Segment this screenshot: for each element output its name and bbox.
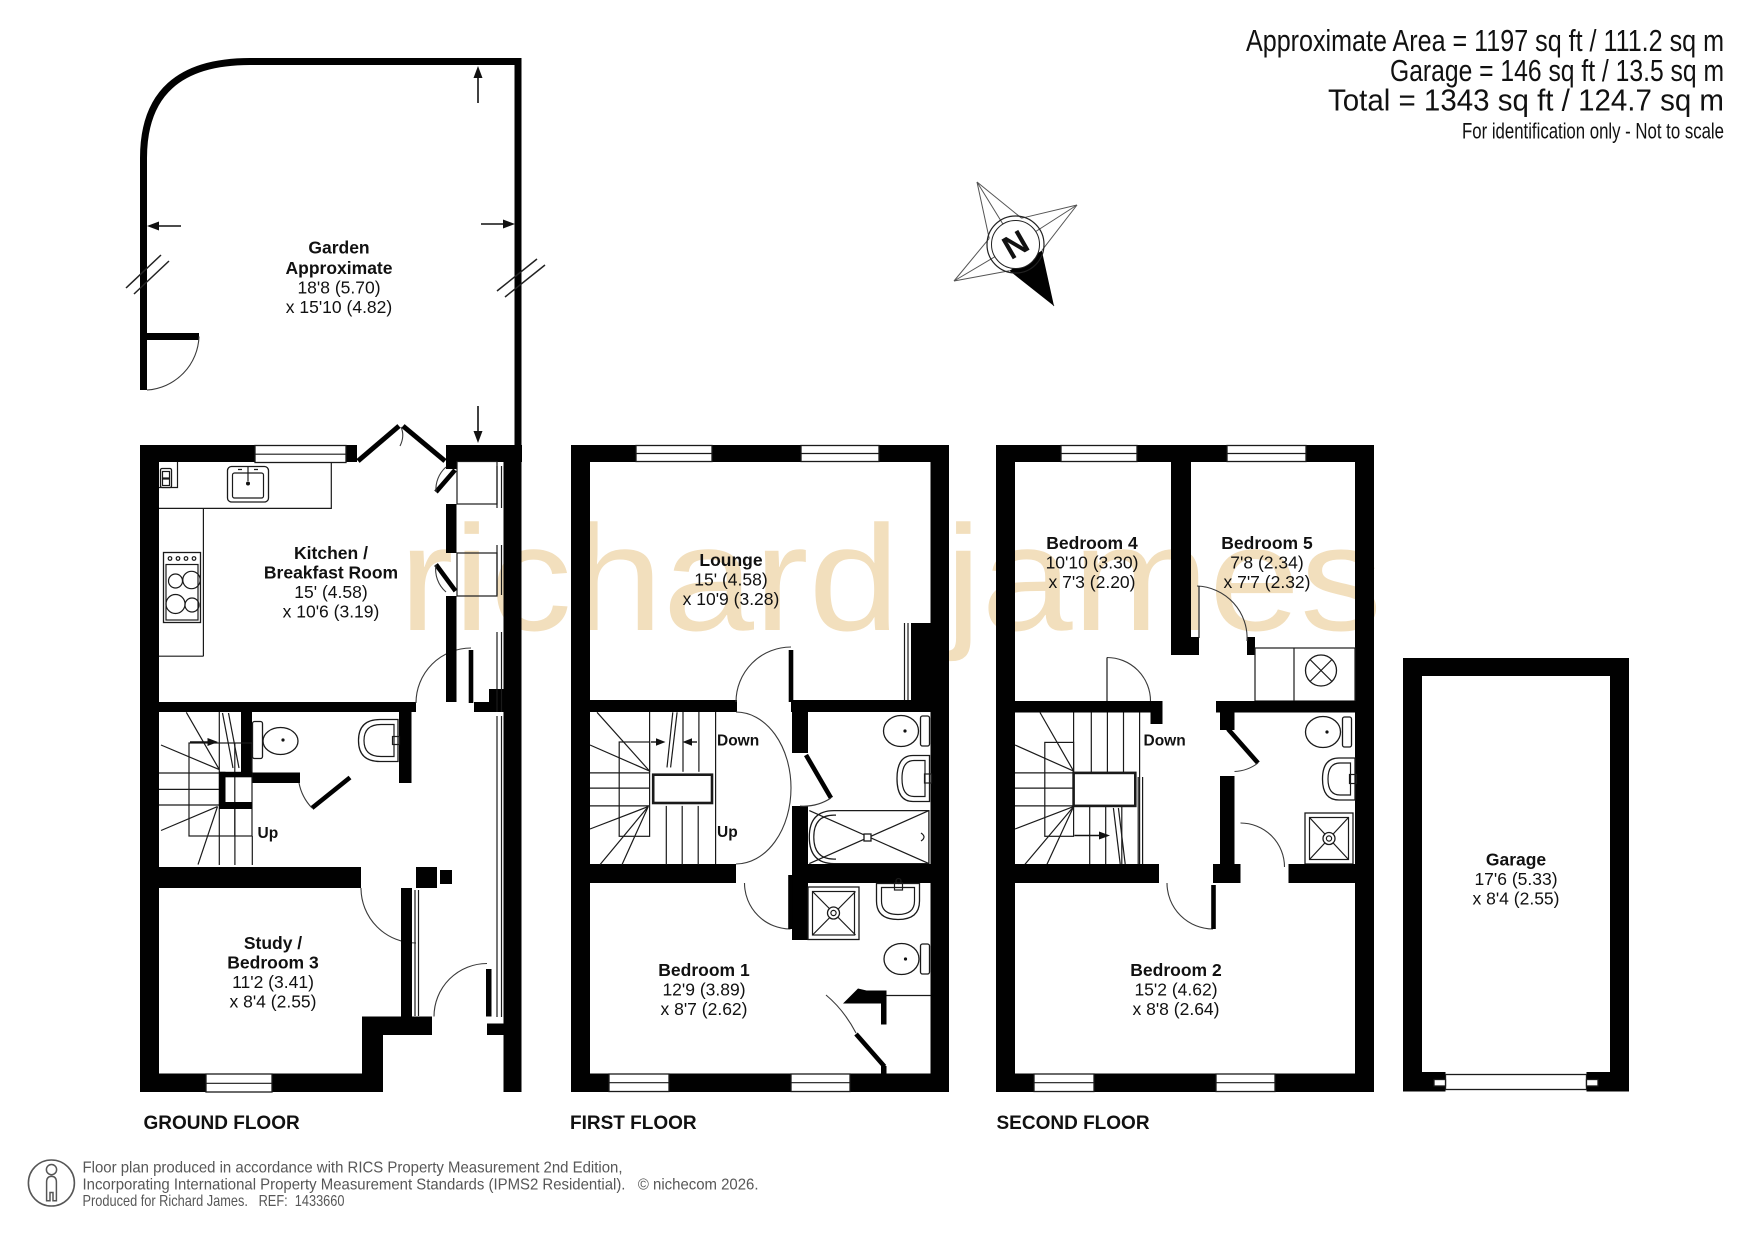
- svg-text:Approximate: Approximate: [286, 258, 393, 278]
- svg-text:x 7'7 (2.32): x 7'7 (2.32): [1224, 572, 1311, 592]
- svg-text:Bedroom 4: Bedroom 4: [1046, 533, 1138, 553]
- svg-text:GROUND FLOOR: GROUND FLOOR: [144, 1113, 300, 1134]
- svg-text:Lounge: Lounge: [699, 550, 762, 570]
- svg-text:x 8'7 (2.62): x 8'7 (2.62): [661, 999, 748, 1019]
- svg-text:x 8'4 (2.55): x 8'4 (2.55): [230, 992, 317, 1012]
- svg-text:7'8 (2.34): 7'8 (2.34): [1230, 553, 1303, 573]
- svg-text:Down: Down: [1144, 733, 1186, 750]
- svg-text:x 10'6 (3.19): x 10'6 (3.19): [283, 602, 380, 622]
- svg-text:Total = 1343 sq ft / 124.7 sq: Total = 1343 sq ft / 124.7 sq m: [1328, 83, 1724, 118]
- svg-text:x 15'10 (4.82): x 15'10 (4.82): [286, 297, 392, 317]
- svg-text:x 7'3 (2.20): x 7'3 (2.20): [1049, 572, 1136, 592]
- svg-text:Breakfast Room: Breakfast Room: [264, 563, 398, 583]
- svg-text:Kitchen /: Kitchen /: [294, 543, 368, 563]
- svg-text:SECOND FLOOR: SECOND FLOOR: [997, 1113, 1150, 1134]
- svg-text:15'2 (4.62): 15'2 (4.62): [1134, 980, 1217, 1000]
- svg-text:10'10 (3.30): 10'10 (3.30): [1046, 553, 1139, 573]
- svg-text:Bedroom 5: Bedroom 5: [1221, 533, 1313, 553]
- svg-text:FIRST FLOOR: FIRST FLOOR: [570, 1113, 697, 1134]
- svg-text:Up: Up: [717, 824, 738, 841]
- svg-text:18'8 (5.70): 18'8 (5.70): [297, 278, 380, 298]
- svg-text:For identification only - Not: For identification only - Not to scale: [1462, 119, 1724, 144]
- svg-text:Bedroom 2: Bedroom 2: [1130, 960, 1222, 980]
- svg-text:Study /: Study /: [244, 933, 302, 953]
- svg-text:Down: Down: [717, 733, 759, 750]
- svg-text:11'2 (3.41): 11'2 (3.41): [232, 972, 314, 992]
- svg-text:Bedroom 1: Bedroom 1: [658, 960, 750, 980]
- svg-text:17'6 (5.33): 17'6 (5.33): [1474, 869, 1557, 889]
- svg-text:12'9 (3.89): 12'9 (3.89): [662, 980, 745, 1000]
- svg-text:Floor plan produced in accorda: Floor plan produced in accordance with R…: [83, 1160, 623, 1177]
- svg-text:15' (4.58): 15' (4.58): [294, 582, 367, 602]
- svg-text:15' (4.58): 15' (4.58): [694, 570, 767, 590]
- svg-text:Garage: Garage: [1486, 850, 1547, 870]
- svg-text:Bedroom 3: Bedroom 3: [227, 953, 319, 973]
- svg-text:x 10'9 (3.28): x 10'9 (3.28): [683, 589, 780, 609]
- svg-text:Produced for Richard James.: Produced for Richard James. REF: 1433660: [83, 1193, 345, 1210]
- svg-text:x 8'4 (2.55): x 8'4 (2.55): [1473, 889, 1560, 909]
- svg-text:x 8'8 (2.64): x 8'8 (2.64): [1133, 999, 1220, 1019]
- svg-text:Incorporating International Pr: Incorporating International Property Mea…: [83, 1176, 759, 1193]
- svg-text:Up: Up: [258, 825, 279, 842]
- svg-text:Garden: Garden: [308, 238, 369, 258]
